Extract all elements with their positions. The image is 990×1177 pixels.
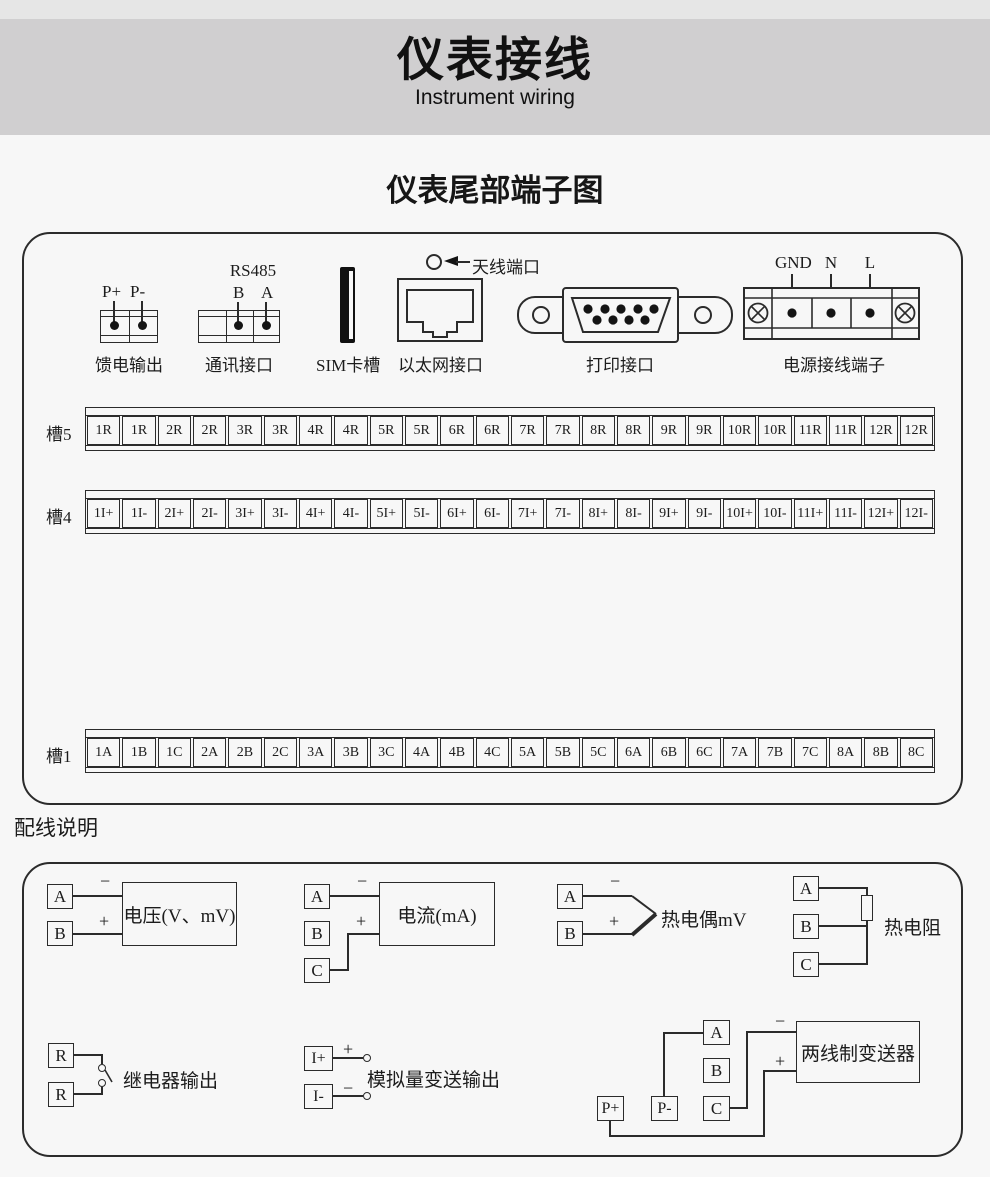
- terminal-cell: 7I-: [546, 499, 579, 528]
- power-pin-label: L: [863, 253, 877, 273]
- terminal-cell: 6R: [476, 416, 509, 445]
- slot1-terminal-strip: 1A1B1C2A2B2C3A3B3C4A4B4C5A5B5C6A6B6C7A7B…: [85, 729, 935, 773]
- terminal-cell: 9I+: [652, 499, 685, 528]
- header-band: 仪表接线 Instrument wiring: [0, 19, 990, 135]
- terminal-cell: 4I-: [334, 499, 367, 528]
- power-pin-label: GND: [775, 253, 809, 273]
- terminal-b: B: [304, 921, 330, 946]
- terminal-cell: 8R: [582, 416, 615, 445]
- thermocouple-label: 热电偶mV: [661, 905, 747, 932]
- wire: [73, 895, 122, 897]
- wire: [609, 1121, 611, 1137]
- terminal-cell: 8C: [900, 738, 933, 767]
- terminal-cell: 10R: [758, 416, 791, 445]
- wire: [746, 1031, 796, 1033]
- terminal-b: B: [47, 921, 73, 946]
- output-contact: [363, 1054, 371, 1062]
- terminal-b: B: [703, 1058, 730, 1083]
- slot4-label: 槽4: [46, 503, 72, 528]
- terminal-r: R: [48, 1043, 74, 1068]
- terminal-cell: 2A: [193, 738, 226, 767]
- terminal-cell: 6A: [617, 738, 650, 767]
- wire: [746, 1031, 748, 1109]
- wire: [456, 261, 470, 263]
- sim-label: SIM卡槽: [316, 351, 379, 376]
- terminal-p-minus: P-: [651, 1096, 678, 1121]
- terminal-cell: 12R: [900, 416, 933, 445]
- terminal-cell: 2C: [264, 738, 297, 767]
- terminal-cell: 7A: [723, 738, 756, 767]
- terminal-cell: 4R: [299, 416, 332, 445]
- wire: [819, 925, 868, 927]
- transmitter-device-box: 两线制变送器: [796, 1021, 920, 1083]
- slot5-terminal-strip: 1R1R2R2R3R3R4R4R5R5R6R6R7R7R8R8R9R9R10R1…: [85, 407, 935, 451]
- relay-label: 继电器输出: [123, 1066, 218, 1093]
- terminal-a: A: [793, 876, 819, 901]
- terminal-cell: 4C: [476, 738, 509, 767]
- wire: [663, 1032, 703, 1034]
- terminal-cell: 1R: [122, 416, 155, 445]
- terminal-cell: 5R: [405, 416, 438, 445]
- page-title: 仪表接线: [0, 19, 990, 89]
- antenna-port-icon: [426, 254, 442, 270]
- slot1-label: 槽1: [46, 742, 72, 767]
- terminal-b: B: [557, 921, 583, 946]
- terminal-cell: 5B: [546, 738, 579, 767]
- terminal-cell: 4B: [440, 738, 473, 767]
- terminal-cell: 8R: [617, 416, 650, 445]
- terminal-cell: 8I-: [617, 499, 650, 528]
- terminal-cell: 11R: [794, 416, 827, 445]
- wire: [583, 933, 632, 935]
- feed-terminal-block: [100, 310, 158, 343]
- terminal-dot: [262, 321, 271, 330]
- terminal-cell: 8A: [829, 738, 862, 767]
- terminal-a: A: [47, 884, 73, 909]
- antenna-label: 天线端口: [472, 253, 540, 278]
- terminal-cell: 6R: [440, 416, 473, 445]
- page-subtitle: Instrument wiring: [0, 87, 990, 109]
- terminal-cell: 9I-: [688, 499, 721, 528]
- terminal-cell: 2R: [158, 416, 191, 445]
- terminal-cell: 12R: [864, 416, 897, 445]
- comm-pin-label: B: [233, 283, 244, 303]
- plus-sign: +: [609, 912, 619, 930]
- terminal-cell: 4I+: [299, 499, 332, 528]
- terminal-cell: 2I-: [193, 499, 226, 528]
- terminal-cell: 6I-: [476, 499, 509, 528]
- wire: [819, 887, 868, 889]
- voltage-device-box: 电压(V、mV): [122, 882, 237, 946]
- terminal-cell: 3C: [370, 738, 403, 767]
- terminal-cell: 2I+: [158, 499, 191, 528]
- slot4-terminal-strip: 1I+1I-2I+2I-3I+3I-4I+4I-5I+5I-6I+6I-7I+7…: [85, 490, 935, 534]
- thermocouple-junction: [630, 893, 660, 938]
- terminal-cell: 5I+: [370, 499, 403, 528]
- terminal-cell: 3I-: [264, 499, 297, 528]
- feed-pin-label: P+: [102, 282, 121, 302]
- terminal-p-plus: P+: [597, 1096, 624, 1121]
- terminal-dot: [234, 321, 243, 330]
- terminal-cell: 4R: [334, 416, 367, 445]
- terminal-b: B: [793, 914, 819, 939]
- comm-pin-label: A: [261, 283, 273, 303]
- minus-sign: −: [100, 872, 110, 890]
- switch-blade: [102, 1066, 116, 1086]
- terminal-r: R: [48, 1082, 74, 1107]
- terminal-cell: 4A: [405, 738, 438, 767]
- terminal-cell: 9R: [652, 416, 685, 445]
- rtd-label: 热电阻: [884, 913, 941, 940]
- comm-label: 通讯接口: [205, 351, 273, 376]
- terminal-cell: 12I-: [900, 499, 933, 528]
- terminal-cell: 1A: [87, 738, 120, 767]
- feed-output-label: 馈电输出: [95, 351, 163, 376]
- terminal-c: C: [793, 952, 819, 977]
- db9-connector-icon: [515, 285, 740, 345]
- analog-output-label: 模拟量变送输出: [367, 1065, 500, 1092]
- terminal-cell: 5R: [370, 416, 403, 445]
- terminal-cell: 2B: [228, 738, 261, 767]
- terminal-cell: 6I+: [440, 499, 473, 528]
- wire: [763, 1070, 765, 1137]
- terminal-cell: 2R: [193, 416, 226, 445]
- terminal-cell: 7B: [758, 738, 791, 767]
- rj45-jack-icon: [397, 278, 483, 342]
- minus-sign: −: [775, 1012, 785, 1030]
- terminal-dot: [138, 321, 147, 330]
- terminal-cell: 1I-: [122, 499, 155, 528]
- terminal-cell: 9R: [688, 416, 721, 445]
- printer-label: 打印接口: [586, 351, 654, 376]
- terminal-cell: 12I+: [864, 499, 897, 528]
- plus-sign: +: [356, 912, 366, 930]
- terminal-cell: 10I-: [758, 499, 791, 528]
- top-strip: [0, 0, 990, 19]
- terminal-cell: 11I-: [829, 499, 862, 528]
- terminal-cell: 5I-: [405, 499, 438, 528]
- terminal-cell: 11I+: [794, 499, 827, 528]
- terminal-i-minus: I-: [304, 1084, 333, 1109]
- wire: [73, 933, 122, 935]
- terminal-cell: 1I+: [87, 499, 120, 528]
- terminal-cell: 7C: [794, 738, 827, 767]
- plus-sign: +: [775, 1052, 785, 1070]
- wire: [101, 1087, 103, 1094]
- terminal-cell: 3R: [228, 416, 261, 445]
- wire: [330, 969, 348, 971]
- terminal-cell: 3R: [264, 416, 297, 445]
- terminal-cell: 1C: [158, 738, 191, 767]
- wire: [583, 895, 632, 897]
- terminal-cell: 3A: [299, 738, 332, 767]
- terminal-cell: 8B: [864, 738, 897, 767]
- wire: [74, 1093, 103, 1095]
- terminal-cell: 11R: [829, 416, 862, 445]
- minus-sign: −: [343, 1079, 353, 1097]
- terminal-cell: 5A: [511, 738, 544, 767]
- ethernet-label: 以太网接口: [398, 351, 483, 376]
- current-device-box: 电流(mA): [379, 882, 495, 946]
- terminal-a: A: [304, 884, 330, 909]
- terminal-cell: 3I+: [228, 499, 261, 528]
- plus-sign: +: [343, 1040, 353, 1058]
- terminal-cell: 10I+: [723, 499, 756, 528]
- instrument-wiring-page: 仪表接线 Instrument wiring 仪表尾部端子图 P+ P- 馈电输…: [0, 0, 990, 1177]
- terminal-cell: 7R: [546, 416, 579, 445]
- terminal-i-plus: I+: [304, 1046, 333, 1071]
- terminal-a: A: [703, 1020, 730, 1045]
- plus-sign: +: [99, 912, 109, 930]
- terminal-c: C: [703, 1096, 730, 1121]
- output-contact: [363, 1092, 371, 1100]
- terminal-cell: 1R: [87, 416, 120, 445]
- sim-slot-icon: [340, 267, 355, 343]
- minus-sign: −: [610, 872, 620, 890]
- wire: [347, 933, 379, 935]
- terminal-cell: 6C: [688, 738, 721, 767]
- section-title: 仪表尾部端子图: [0, 165, 990, 210]
- wire: [819, 963, 868, 965]
- power-pin-label: N: [824, 253, 838, 273]
- wire: [663, 1032, 665, 1096]
- terminal-cell: 7I+: [511, 499, 544, 528]
- terminal-cell: 5C: [582, 738, 615, 767]
- wire: [101, 1054, 103, 1064]
- terminal-cell: 10R: [723, 416, 756, 445]
- terminal-cell: 6B: [652, 738, 685, 767]
- minus-sign: −: [357, 872, 367, 890]
- terminal-c: C: [304, 958, 330, 983]
- terminal-cell: 1B: [122, 738, 155, 767]
- power-label: 电源接线端子: [783, 351, 885, 376]
- terminal-dot: [110, 321, 119, 330]
- wiring-section-title: 配线说明: [14, 812, 98, 842]
- terminal-cell: 3B: [334, 738, 367, 767]
- wire: [347, 933, 349, 971]
- wire: [74, 1054, 103, 1056]
- terminal-cell: 7R: [511, 416, 544, 445]
- power-terminal-block: [743, 287, 920, 340]
- wire: [330, 895, 379, 897]
- resistor-symbol: [861, 895, 873, 921]
- wire: [609, 1135, 765, 1137]
- rs485-label: RS485: [226, 261, 280, 281]
- feed-pin-label: P-: [130, 282, 145, 302]
- slot5-label: 槽5: [46, 420, 72, 445]
- terminal-cell: 8I+: [582, 499, 615, 528]
- terminal-a: A: [557, 884, 583, 909]
